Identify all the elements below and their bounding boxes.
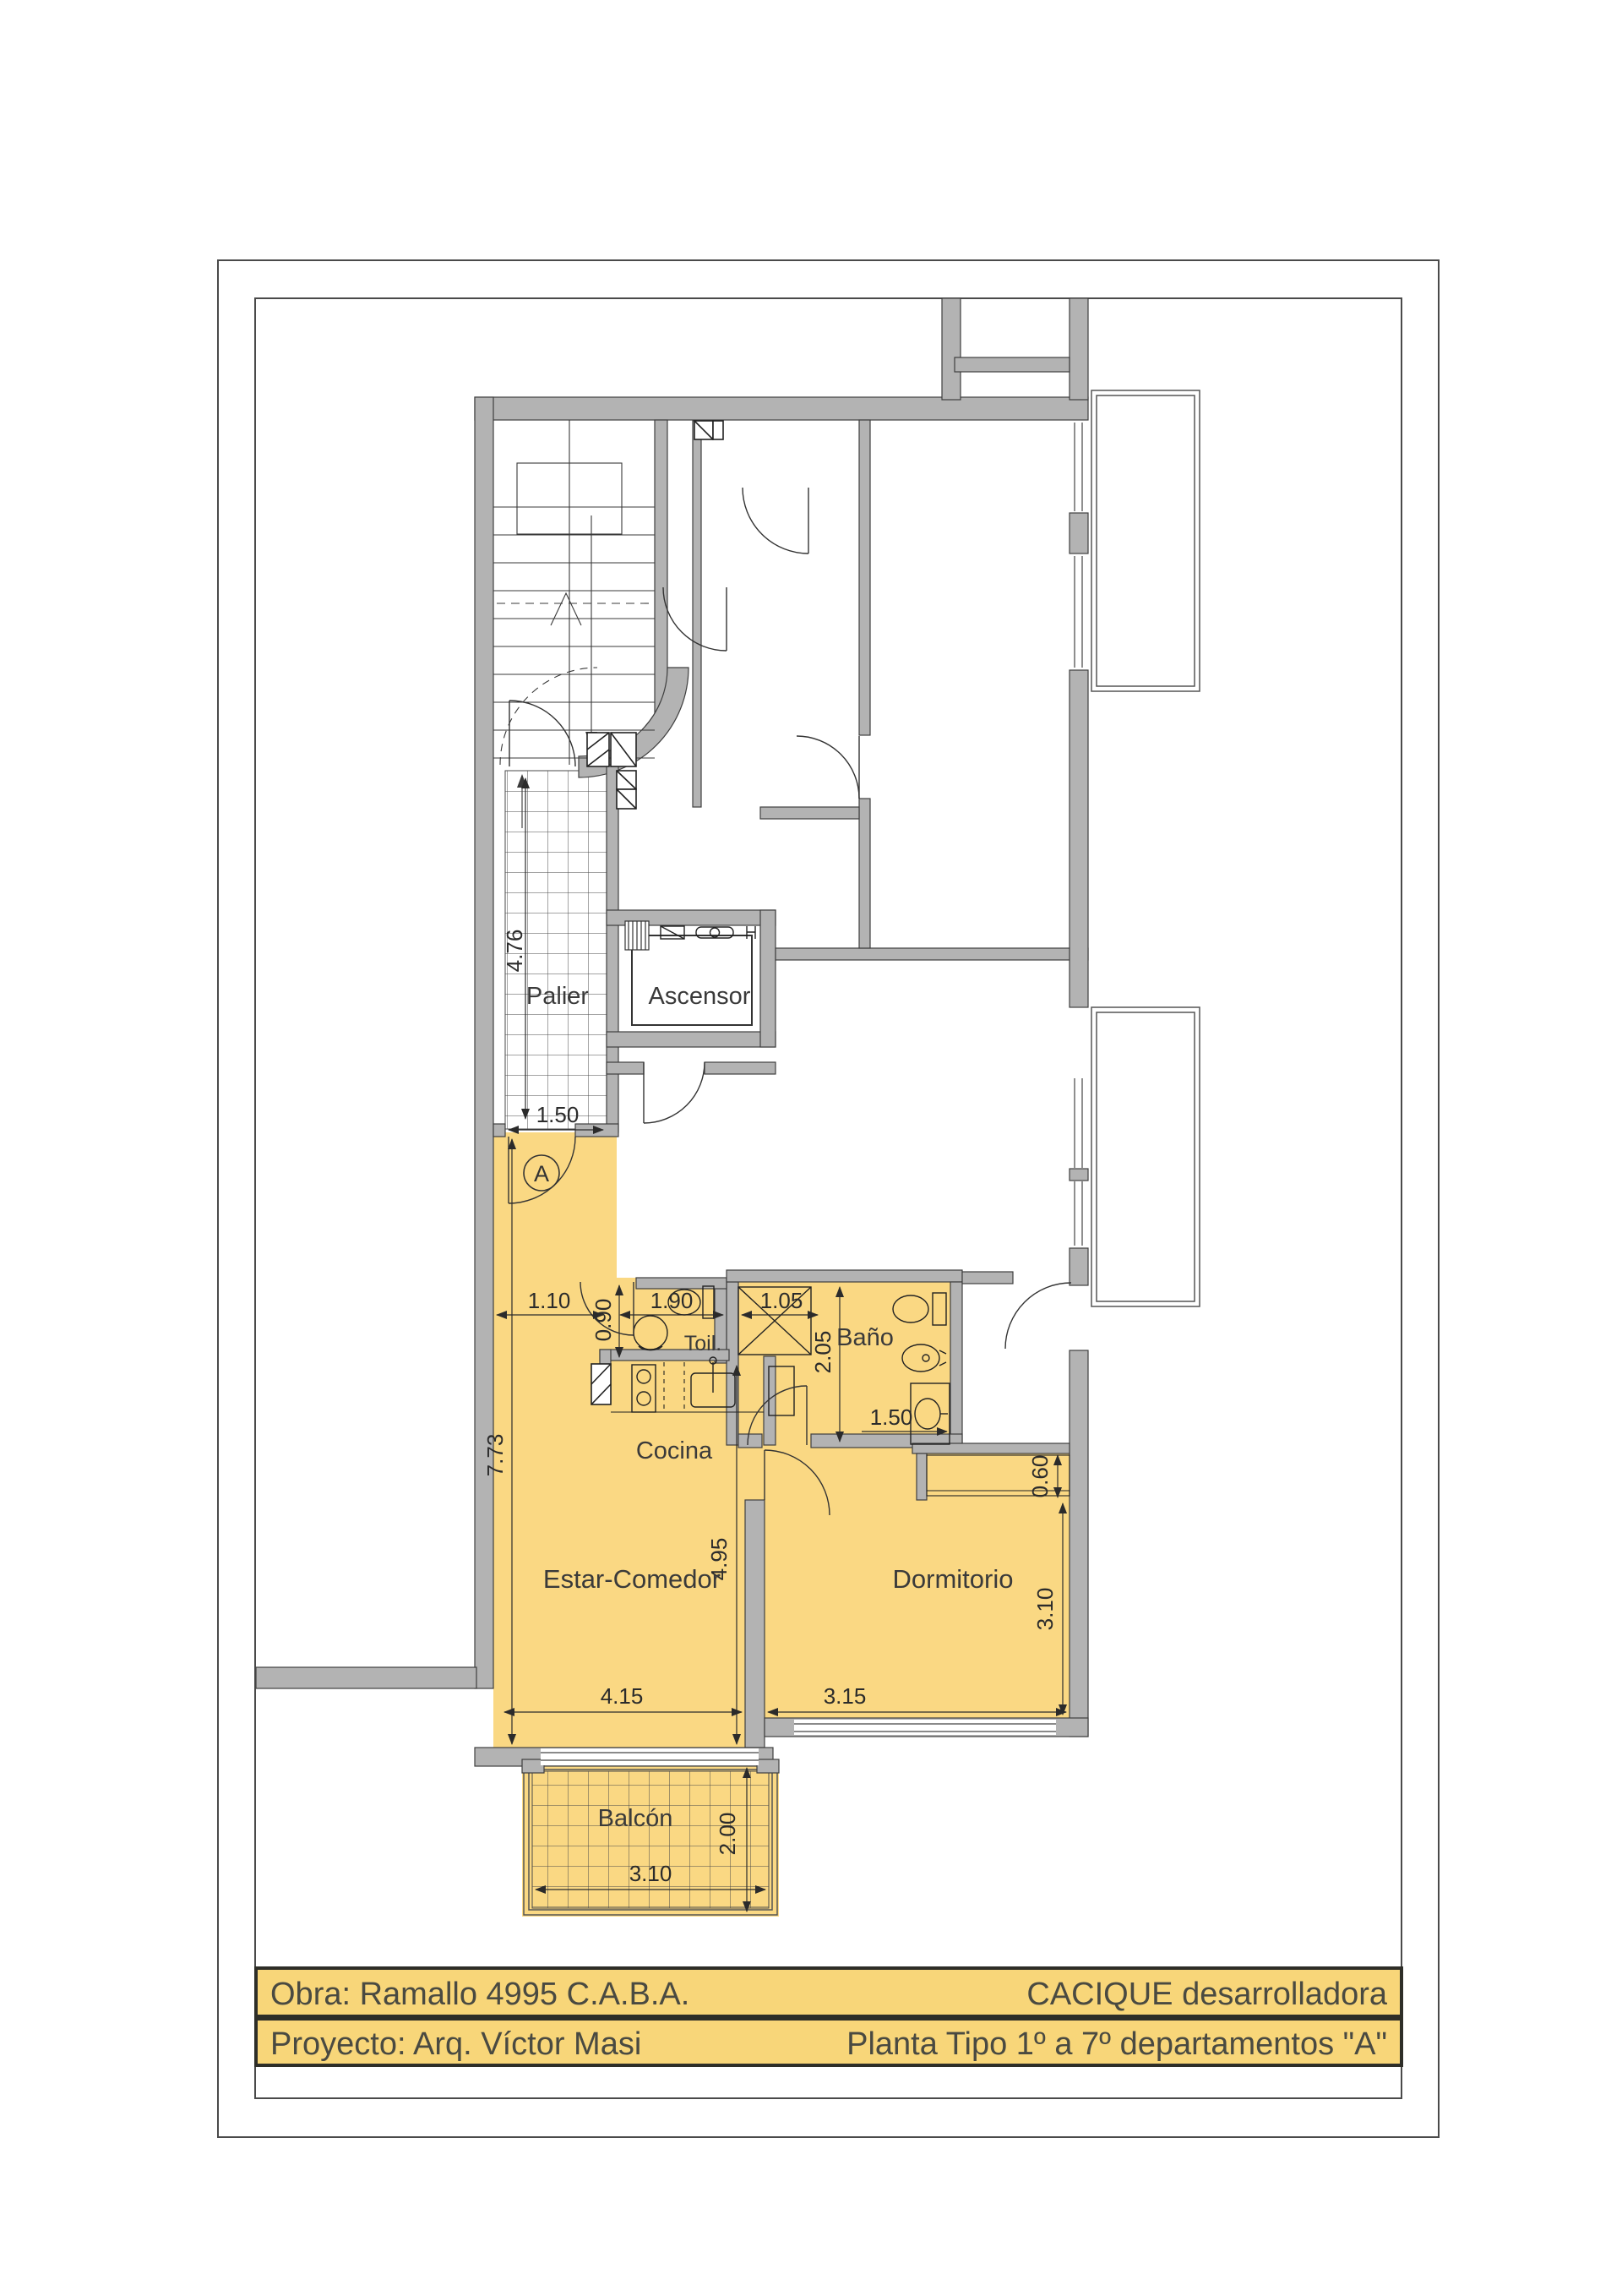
window-estar-south (541, 1748, 759, 1765)
stair-treads (493, 507, 655, 758)
duct-kitchen (591, 1364, 611, 1404)
marker-letter: A (534, 1161, 549, 1186)
dim-entry-width: 1.10 (528, 1288, 571, 1313)
elevator-cab (632, 935, 752, 1025)
wall-hall2-north (962, 1272, 1013, 1284)
wall-neighbor-south (776, 948, 1088, 960)
duct-stair-1 (587, 733, 636, 766)
wall-entry-pier-left (493, 1124, 505, 1137)
wall-estar-dorm-divider (745, 1500, 765, 1748)
dim-toil-door: 0.90 (591, 1299, 616, 1342)
wall-corridor-b (705, 1062, 776, 1074)
window-east-4 (1070, 1181, 1087, 1246)
door-palier (509, 701, 575, 766)
wall-bottom-left-stub (256, 1667, 476, 1688)
title-desarrolladora: CACIQUE desarrolladora (1026, 1977, 1387, 2012)
wall-bano-east (950, 1282, 962, 1448)
inner-border (255, 298, 1402, 2098)
balcony2-rail-inner (1097, 1012, 1195, 1301)
label-balcon: Balcón (598, 1805, 673, 1832)
window-dorm-south (794, 1720, 1056, 1735)
wall-dorm-north (912, 1443, 1070, 1453)
dim-balcon-width: 3.10 (629, 1861, 672, 1886)
door-hall-1 (743, 488, 808, 554)
dim-bano-length: 2.05 (810, 1331, 835, 1374)
wall-top (475, 397, 1088, 420)
label-palier: Palier (526, 983, 589, 1010)
dim-closet-depth: 0.60 (1027, 1455, 1053, 1498)
dim-palier-width: 1.50 (536, 1102, 580, 1127)
drawing-page: 4.76 1.50 1.10 0.90 1.90 1.05 2.05 1.50 … (0, 0, 1622, 2296)
door-corridor-east (1005, 1283, 1071, 1349)
wall-hall-south (760, 807, 859, 819)
wall-corridor-a (607, 1062, 644, 1074)
wall-stair-east (655, 420, 667, 723)
stair-break-caret (551, 593, 581, 625)
dim-palier-length: 4.76 (502, 930, 527, 973)
balcony1-rail-inner (1097, 395, 1195, 686)
dim-dorm-length: 3.10 (1032, 1588, 1058, 1631)
outer-border (218, 260, 1439, 2137)
wall-bano-north (727, 1270, 962, 1282)
label-estar: Estar-Comedor (543, 1564, 721, 1594)
elevator-door-hatch (625, 921, 649, 950)
dim-balcon-depth: 2.00 (715, 1813, 740, 1856)
wall-closet-stub (917, 1453, 927, 1500)
label-cocina: Cocina (636, 1437, 713, 1464)
floor-plan-svg: 4.76 1.50 1.10 0.90 1.90 1.05 2.05 1.50 … (0, 0, 1622, 2296)
wall-ne-divider-upper (859, 420, 870, 735)
wall-east-lower (1070, 1350, 1088, 1737)
wall-east-pier3 (1070, 1248, 1088, 1285)
stair-dashed-arc (500, 668, 597, 765)
dim-bano-width: 1.50 (870, 1404, 913, 1430)
duct-hall (694, 421, 723, 439)
title-block: Obra: Ramallo 4995 C.A.B.A. CACIQUE desa… (256, 1968, 1402, 2065)
title-planta: Planta Tipo 1º a 7º departamentos "A" (846, 2026, 1387, 2062)
dim-shower-width: 1.05 (760, 1288, 803, 1313)
wall-ascensor-south (607, 1032, 776, 1047)
wall-kitchen-east-stub (764, 1356, 776, 1445)
label-dormitorio: Dormitorio (893, 1564, 1014, 1594)
wall-hall-west-thin (693, 421, 701, 807)
wall-frame-stub-left (942, 298, 961, 400)
dim-estar-width: 4.15 (601, 1683, 644, 1709)
wall-ascensor-east (760, 910, 776, 1047)
wall-bano-south-a (738, 1434, 762, 1448)
wall-east-pier1 (1070, 513, 1088, 554)
window-east-1 (1070, 423, 1087, 511)
window-east-3 (1070, 1078, 1087, 1168)
wall-east-solid (1070, 670, 1088, 1007)
wall-left (475, 397, 493, 1688)
wall-balcon-pier-right (757, 1759, 779, 1773)
wall-frame-stub-right (1070, 298, 1088, 400)
label-bano: Baño (836, 1324, 894, 1351)
page-borders (218, 260, 1439, 2137)
title-obra: Obra: Ramallo 4995 C.A.B.A. (270, 1977, 689, 2012)
window-east-2 (1070, 556, 1087, 668)
title-proyecto: Proyecto: Arq. Víctor Masi (270, 2026, 641, 2062)
label-ascensor: Ascensor (649, 983, 751, 1010)
dim-apartment-length: 7.73 (482, 1434, 508, 1477)
door-neighbor-entry (644, 1062, 705, 1123)
balcony1-rail-outer (1091, 390, 1200, 691)
dim-toil-width: 1.90 (650, 1288, 694, 1313)
duct-stair-2 (617, 771, 636, 809)
wall-east-pier2 (1070, 1169, 1088, 1181)
wall-niche (955, 357, 1070, 372)
wall-palier-east (607, 765, 618, 1132)
dim-dorm-width: 3.15 (824, 1683, 867, 1709)
wall-ne-divider-lower (859, 799, 870, 948)
balcony2-rail-outer (1091, 1007, 1200, 1306)
door-ne-room (797, 736, 859, 799)
label-toil: Toil. (684, 1332, 721, 1355)
